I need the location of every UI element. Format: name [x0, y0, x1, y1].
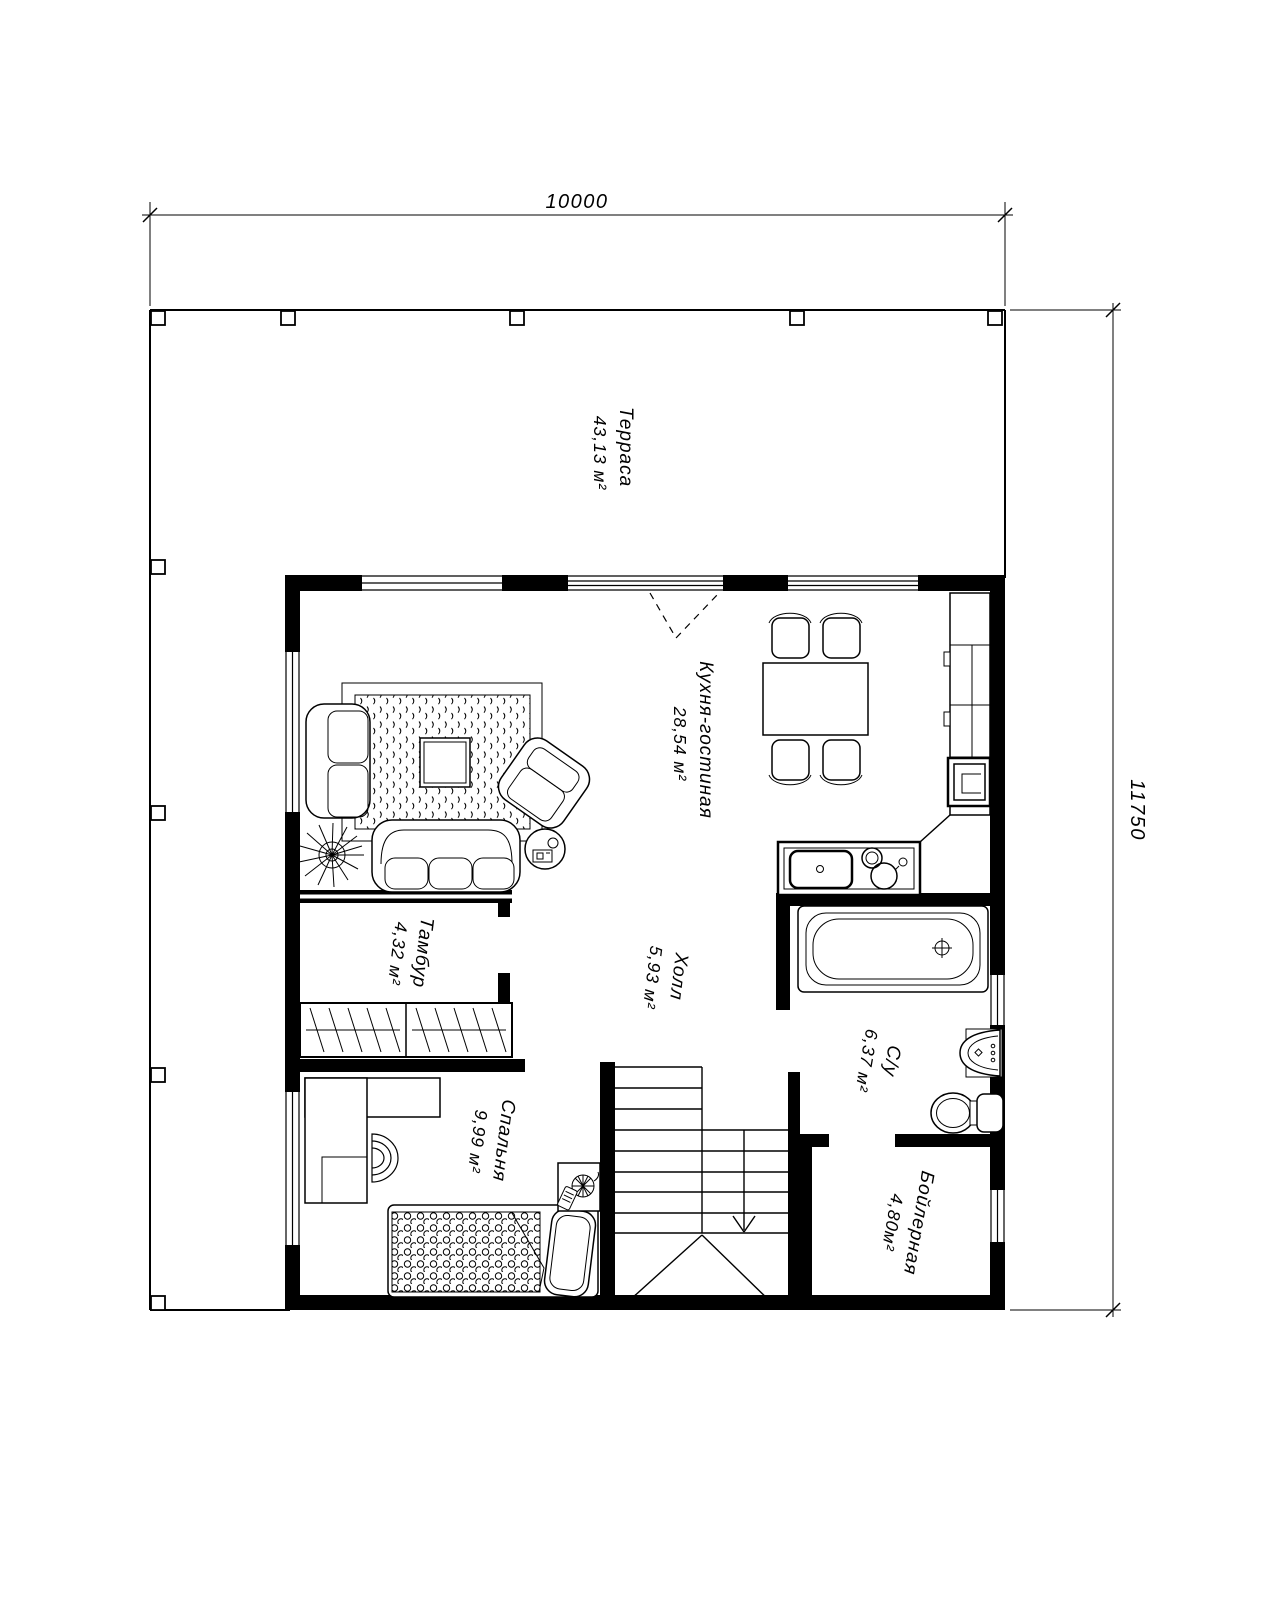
- desk-chair: [372, 1134, 398, 1182]
- dining-chair: [769, 613, 811, 658]
- svg-text:5,93 м²: 5,93 м²: [639, 945, 667, 1011]
- dining-chair: [820, 740, 862, 785]
- terrace-outline: [150, 310, 1005, 1310]
- svg-text:Спальня: Спальня: [488, 1098, 519, 1183]
- side-table-lamp: [525, 829, 565, 869]
- terrace-post: [151, 1296, 165, 1310]
- room-label-bedroom: Спальня 9,99 м²: [463, 1095, 519, 1183]
- room-label-tambour: Тамбур 4,32 м²: [384, 913, 437, 990]
- terrace-post: [790, 311, 804, 325]
- stairs: [615, 1067, 788, 1308]
- dimension-right: 11750: [1010, 303, 1148, 1317]
- coffee-table: [420, 738, 470, 787]
- svg-text:43,13 м²: 43,13 м²: [590, 416, 610, 491]
- cabinet-handle: [944, 652, 950, 666]
- dimension-top-label: 10000: [545, 191, 608, 213]
- terrace-post: [151, 1068, 165, 1082]
- room-label-boiler: Бойлерная 4,80м²: [874, 1165, 938, 1277]
- svg-text:28,54 м²: 28,54 м²: [670, 706, 690, 782]
- window-living-left: [286, 652, 299, 812]
- dining-chair: [820, 613, 862, 658]
- floor-plan-canvas: 10000 11750: [0, 0, 1280, 1600]
- terrace-post: [281, 311, 295, 325]
- svg-text:Терраса: Терраса: [615, 407, 636, 487]
- window-bathroom-right: [991, 975, 1004, 1025]
- dining-table: [763, 663, 868, 735]
- floor-plan-page: 10000 11750: [0, 0, 1280, 1600]
- svg-text:Холл: Холл: [665, 951, 692, 1002]
- pillow: [543, 1208, 597, 1299]
- cabinet-handle: [944, 712, 950, 726]
- svg-text:4,32 м²: 4,32 м²: [384, 921, 412, 987]
- entrance-door-swing: [650, 593, 718, 638]
- svg-text:9,99 м²: 9,99 м²: [464, 1109, 492, 1175]
- dimension-right-label: 11750: [1126, 779, 1148, 841]
- svg-text:Кухня-гостиная: Кухня-гостиная: [695, 661, 716, 819]
- svg-text:6,37 м²: 6,37 м²: [851, 1028, 882, 1094]
- svg-text:Бойлерная: Бойлерная: [899, 1169, 938, 1277]
- window-kitchen-top: [788, 576, 918, 590]
- terrace-post: [151, 806, 165, 820]
- window-living-top: [362, 576, 502, 590]
- svg-text:4,80м²: 4,80м²: [878, 1192, 908, 1253]
- dining-chair: [769, 740, 811, 785]
- dimension-top: 10000: [142, 191, 1013, 306]
- bed: [388, 1205, 598, 1298]
- window-boiler-right: [991, 1190, 1004, 1242]
- terrace-posts: [151, 311, 1002, 1310]
- window-bedroom-left: [286, 1092, 299, 1245]
- stairs-down-arrow: [733, 1130, 755, 1232]
- room-label-bathroom: С/у 6,37 м²: [851, 1028, 906, 1099]
- room-label-terrace: Терраса 43,13 м²: [590, 407, 636, 491]
- blanket: [392, 1212, 540, 1292]
- toilet: [931, 1093, 1003, 1133]
- sofa-two-seat: [306, 704, 370, 818]
- oven: [948, 758, 990, 806]
- svg-text:Тамбур: Тамбур: [408, 916, 438, 989]
- window-entrance-top: [568, 576, 723, 590]
- terrace-post: [988, 311, 1002, 325]
- washbasin: [960, 1029, 1002, 1077]
- terrace-post: [151, 560, 165, 574]
- plant: [299, 823, 364, 887]
- terrace-post: [151, 311, 165, 325]
- svg-text:С/у: С/у: [878, 1044, 904, 1079]
- sofa-three-seat: [372, 820, 520, 892]
- bathtub: [798, 906, 988, 992]
- wardrobe: [300, 1003, 512, 1057]
- terrace-post: [510, 311, 524, 325]
- room-label-kitchen-living: Кухня-гостиная 28,54 м²: [670, 661, 716, 819]
- kitchen-sink: [778, 842, 920, 895]
- nightstand: [557, 1163, 600, 1211]
- room-label-hall: Холл 5,93 м²: [639, 945, 692, 1014]
